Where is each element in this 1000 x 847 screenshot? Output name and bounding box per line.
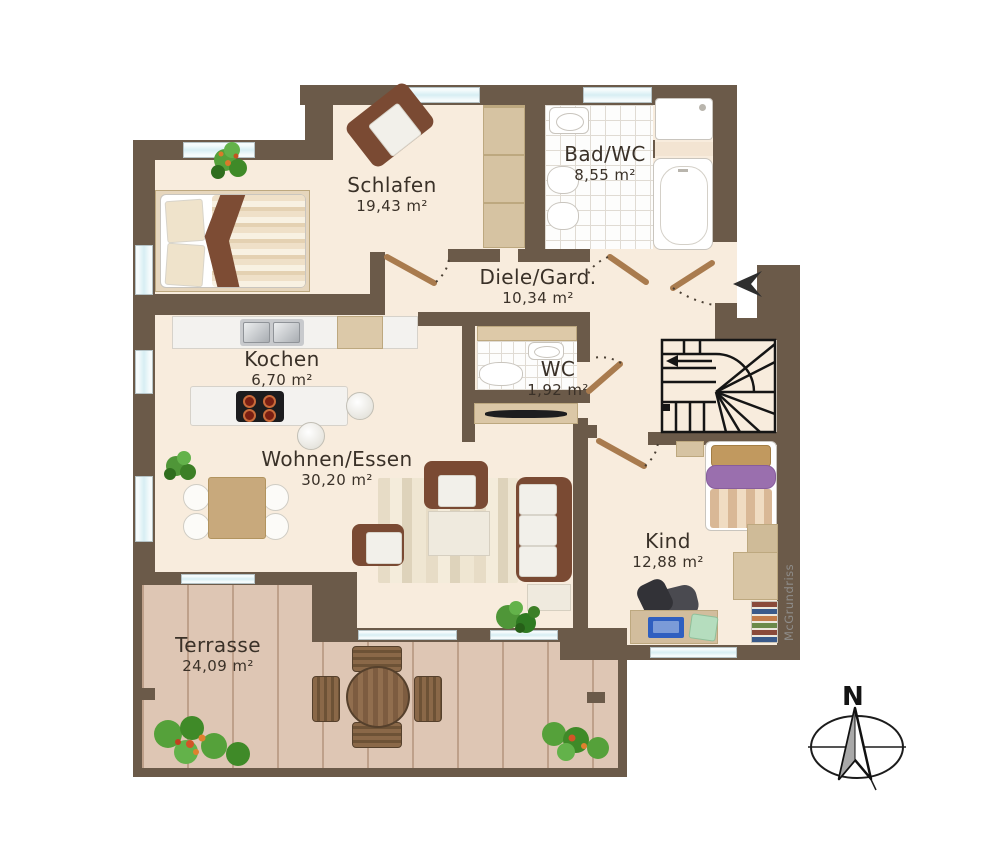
room-label-kind: Kind 12,88 m² (578, 530, 758, 571)
wall-segment (370, 252, 385, 315)
armchair-cushion (366, 532, 402, 564)
wall-segment (713, 85, 737, 242)
window (490, 630, 558, 640)
wall-segment (525, 105, 545, 262)
room-label-bad: Bad/WC 8,55 m² (545, 143, 665, 184)
terrace-wall (587, 692, 605, 703)
terrace-chair (414, 676, 442, 722)
kind-blanket-purple (706, 465, 776, 489)
room-label-wohnen: Wohnen/Essen 30,20 m² (227, 448, 447, 489)
room-area: 6,70 m² (192, 372, 372, 390)
room-label-schlafen: Schlafen 19,43 m² (302, 174, 482, 215)
room-area: 1,92 m² (498, 382, 618, 400)
wall-segment (150, 294, 372, 315)
room-area: 24,09 m² (128, 658, 308, 676)
terrace-wall (133, 768, 618, 777)
floorplan: Schlafen 19,43 m² Bad/WC 8,55 m² Diele/G… (0, 0, 1000, 847)
room-name: Diele/Gard. (448, 266, 628, 290)
tv-sideboard (474, 403, 578, 424)
dining-chair (262, 513, 289, 540)
sofa (516, 477, 572, 582)
window (135, 476, 153, 542)
wardrobe (483, 105, 525, 248)
pillow (165, 199, 206, 244)
wall-segment (573, 418, 588, 630)
wall-segment (560, 628, 627, 660)
kitchen-appliance (337, 316, 383, 349)
wall-segment (577, 312, 590, 362)
room-name: Terrasse (128, 634, 308, 658)
window (650, 647, 737, 658)
shower (655, 98, 713, 140)
side-table (527, 584, 571, 611)
room-label-wc: WC 1,92 m² (498, 358, 618, 399)
room-name: Kind (578, 530, 758, 554)
wall-segment (573, 425, 597, 438)
window (135, 245, 153, 295)
room-label-diele: Diele/Gard. 10,34 m² (448, 266, 628, 307)
watermark: McGrundriss (782, 564, 796, 641)
compass-north-label: N (842, 682, 864, 712)
room-area: 8,55 m² (545, 167, 665, 185)
terrace-table (346, 666, 410, 728)
room-area: 19,43 m² (302, 198, 482, 216)
wall-segment (312, 572, 357, 642)
wall-segment (448, 249, 500, 262)
room-label-kochen: Kochen 6,70 m² (192, 348, 372, 389)
room-area: 12,88 m² (578, 554, 758, 572)
outside-area (0, 85, 305, 142)
bookshelf (751, 601, 778, 643)
wall-segment (757, 265, 800, 323)
room-area: 10,34 m² (448, 290, 628, 308)
coffee-table (428, 511, 490, 556)
kitchen-sink (240, 319, 304, 346)
bath-sink (549, 107, 589, 134)
window (135, 350, 153, 394)
cooktop (236, 391, 284, 422)
wall-segment (715, 303, 737, 323)
wc-shelf (477, 326, 577, 341)
kind-blanket (710, 489, 772, 528)
terrace-wall (133, 583, 142, 777)
room-name: WC (498, 358, 618, 382)
room-name: Bad/WC (545, 143, 665, 167)
room-name: Wohnen/Essen (227, 448, 447, 472)
window (183, 142, 255, 158)
terrace-wall (618, 655, 627, 777)
desk-folder (648, 617, 684, 638)
room-label-terrasse: Terrasse 24,09 m² (128, 634, 308, 675)
terrace-chair (312, 676, 340, 722)
dining-chair (183, 513, 210, 540)
dining-chair (183, 484, 210, 511)
terrace-wall (133, 688, 155, 700)
terrace-door-window (181, 574, 255, 584)
outside-area (627, 660, 1000, 847)
window (583, 87, 652, 103)
outside-area (737, 268, 757, 323)
kind-shelf (676, 441, 704, 457)
kind-pillow (711, 445, 771, 467)
bar-stool (346, 392, 374, 420)
toilet (547, 202, 579, 230)
room-area: 30,20 m² (227, 472, 447, 490)
bar-stool (297, 422, 325, 450)
outside-area (737, 0, 807, 268)
pillow (165, 243, 206, 288)
room-name: Schlafen (302, 174, 482, 198)
window (358, 630, 457, 640)
wall-segment (418, 312, 590, 326)
room-name: Kochen (192, 348, 372, 372)
desk-pad (688, 613, 718, 642)
